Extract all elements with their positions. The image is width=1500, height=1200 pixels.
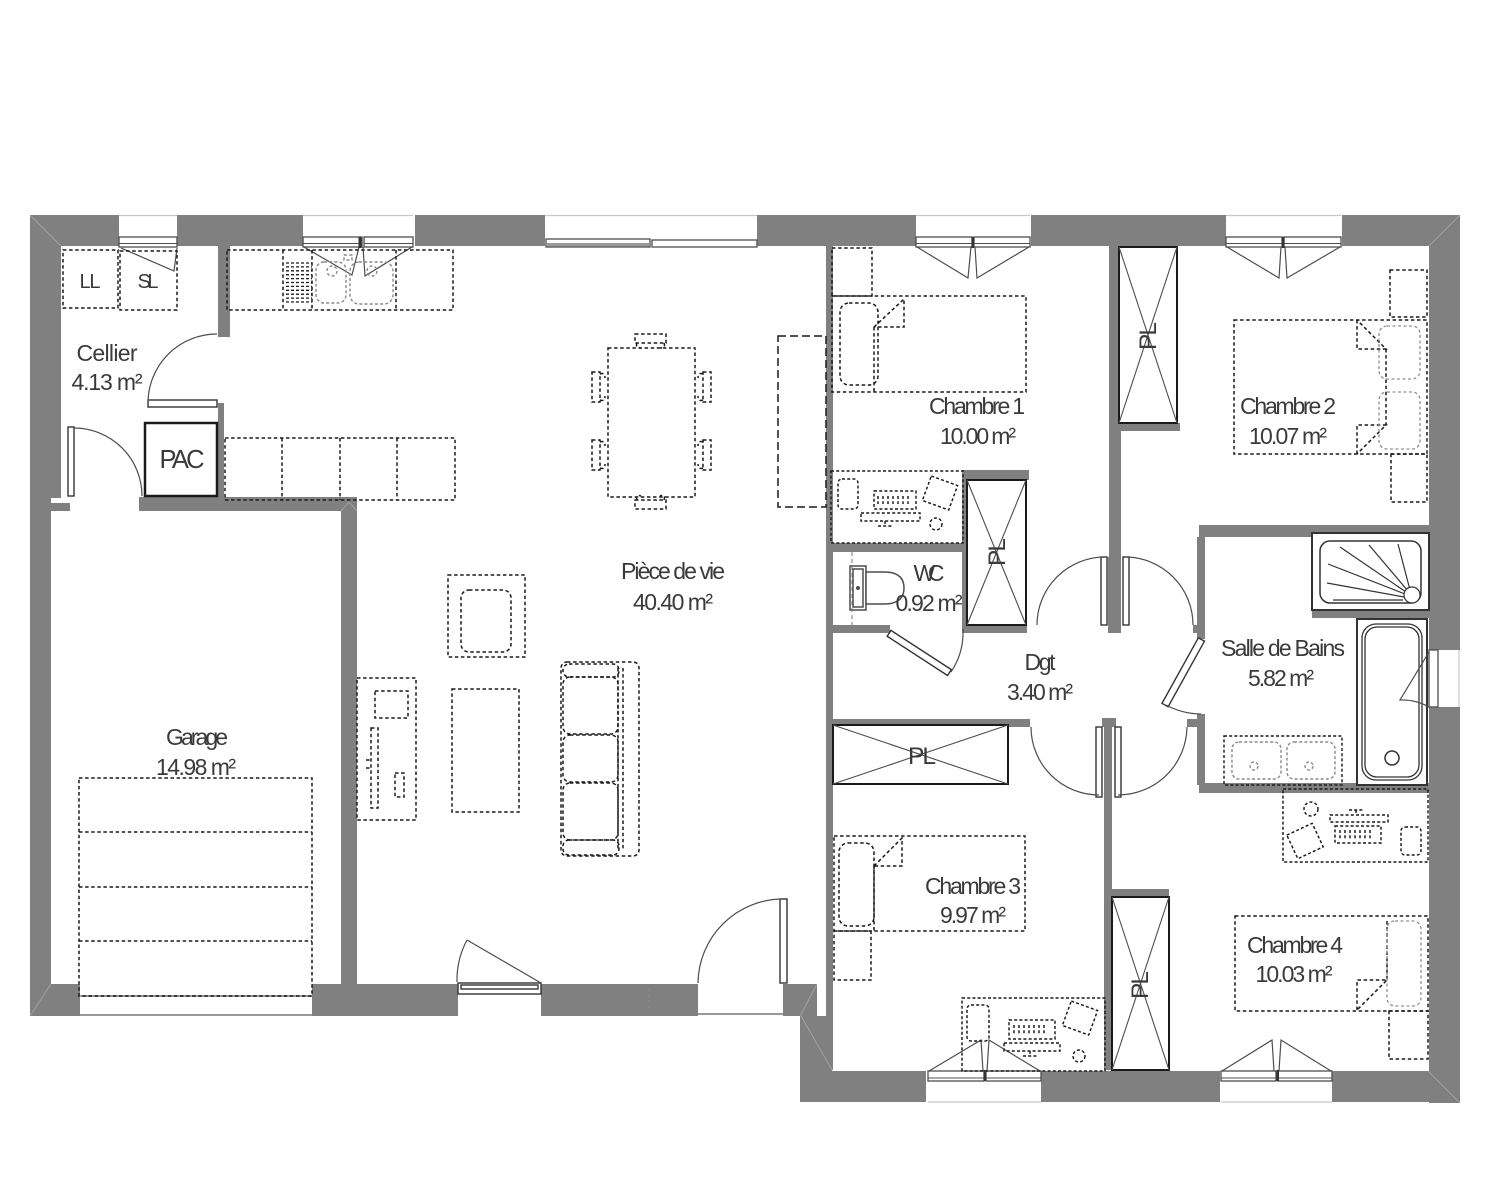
svg-text:0.92 m²: 0.92 m² <box>896 590 963 616</box>
svg-text:5.82 m²: 5.82 m² <box>1248 665 1314 691</box>
svg-text:SL: SL <box>138 271 159 293</box>
svg-text:PAC: PAC <box>160 446 205 474</box>
svg-text:Chambre 4: Chambre 4 <box>1247 932 1343 958</box>
svg-text:Salle de Bains: Salle de Bains <box>1221 635 1345 661</box>
svg-text:Garage: Garage <box>166 724 228 750</box>
svg-text:Chambre 1: Chambre 1 <box>929 393 1025 419</box>
svg-text:14.98 m²: 14.98 m² <box>156 754 236 780</box>
svg-text:10.03 m²: 10.03 m² <box>1256 961 1333 987</box>
svg-text:Pièce de vie: Pièce de vie <box>621 558 725 584</box>
svg-text:LL: LL <box>80 271 101 293</box>
svg-text:PL: PL <box>1127 971 1154 999</box>
svg-text:9.97 m²: 9.97 m² <box>940 902 1006 928</box>
svg-text:40.40 m²: 40.40 m² <box>633 589 713 615</box>
svg-text:WC: WC <box>914 560 945 586</box>
svg-text:4.13 m²: 4.13 m² <box>72 369 143 395</box>
svg-text:Cellier: Cellier <box>77 340 138 366</box>
svg-text:10.00 m²: 10.00 m² <box>940 423 1016 449</box>
svg-text:Dgt: Dgt <box>1025 649 1057 675</box>
svg-text:Chambre 3: Chambre 3 <box>925 873 1021 899</box>
svg-text:PL: PL <box>1135 322 1162 350</box>
svg-text:3.40 m²: 3.40 m² <box>1007 679 1073 705</box>
svg-text:PL: PL <box>908 743 936 770</box>
svg-text:Chambre 2: Chambre 2 <box>1240 393 1336 419</box>
svg-text:10.07 m²: 10.07 m² <box>1249 423 1327 449</box>
svg-text:PL: PL <box>984 538 1011 566</box>
